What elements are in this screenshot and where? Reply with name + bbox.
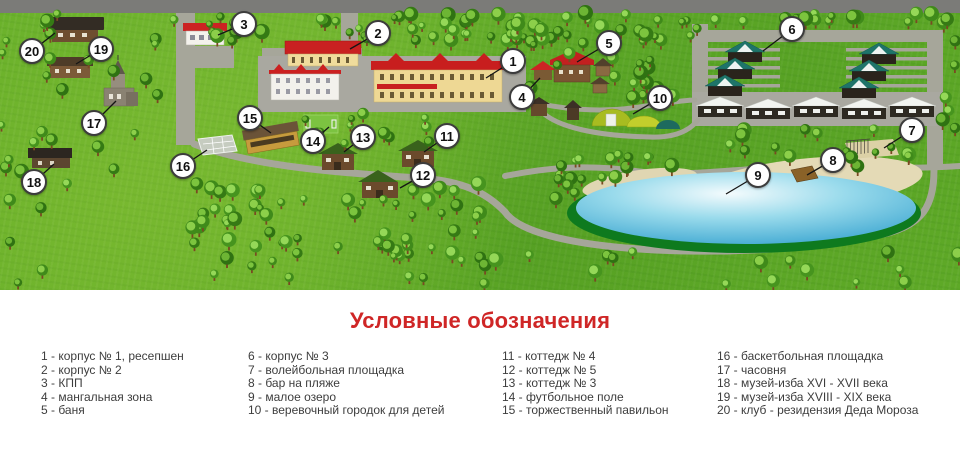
legend-item: 10 - веревочный городок для детей bbox=[248, 404, 444, 418]
legend-item: 5 - баня bbox=[41, 404, 184, 418]
map-marker-8: 8 bbox=[820, 147, 846, 173]
map-marker-14: 14 bbox=[300, 128, 326, 154]
gazebo bbox=[590, 77, 610, 93]
building-chapel bbox=[104, 55, 138, 106]
legend-item: 18 - музей-изба XVI - XVII века bbox=[717, 377, 918, 391]
map-marker-15: 15 bbox=[237, 105, 263, 131]
legend-item: 12 - коттедж № 5 bbox=[502, 364, 669, 378]
resort-map-page: 1234567891011121314151617181920 Условные… bbox=[0, 0, 960, 453]
legend-item: 20 - клуб - резидензия Деда Мороза bbox=[717, 404, 918, 418]
legend-item: 7 - волейбольная площадка bbox=[248, 364, 444, 378]
map-marker-6: 6 bbox=[779, 16, 805, 42]
map-marker-18: 18 bbox=[21, 169, 47, 195]
legend-item: 1 - корпус № 1, ресепшен bbox=[41, 350, 184, 364]
building-museum-izba-16-17 bbox=[28, 148, 72, 168]
map-marker-7: 7 bbox=[899, 117, 925, 143]
legend-column-2: 6 - корпус № 37 - волейбольная площадка8… bbox=[248, 350, 444, 418]
map-marker-19: 19 bbox=[88, 36, 114, 62]
map-marker-9: 9 bbox=[745, 162, 771, 188]
map-marker-4: 4 bbox=[509, 84, 535, 110]
map-marker-17: 17 bbox=[81, 110, 107, 136]
building-korpus-3-cottages bbox=[705, 41, 899, 98]
map-marker-5: 5 bbox=[596, 30, 622, 56]
legend-item: 3 - КПП bbox=[41, 377, 184, 391]
map-marker-13: 13 bbox=[350, 124, 376, 150]
legend-item: 15 - торжественный павильон bbox=[502, 404, 669, 418]
legend-item: 16 - баскетбольная площадка bbox=[717, 350, 918, 364]
lake-area bbox=[567, 148, 925, 253]
resort-map: 1234567891011121314151617181920 bbox=[0, 0, 960, 291]
terrain-layer bbox=[0, 0, 960, 290]
map-marker-3: 3 bbox=[231, 11, 257, 37]
legend-title: Условные обозначения bbox=[0, 308, 960, 334]
legend: Условные обозначения 1 - корпус № 1, рес… bbox=[0, 290, 960, 453]
map-marker-1: 1 bbox=[500, 48, 526, 74]
legend-column-4: 16 - баскетбольная площадка17 - часовня1… bbox=[717, 350, 918, 418]
legend-item: 4 - мангальная зона bbox=[41, 391, 184, 405]
legend-item: 9 - малое озеро bbox=[248, 391, 444, 405]
legend-item: 6 - корпус № 3 bbox=[248, 350, 444, 364]
map-marker-16: 16 bbox=[170, 153, 196, 179]
building-korpus-1 bbox=[371, 53, 504, 102]
map-marker-12: 12 bbox=[410, 162, 436, 188]
legend-item: 8 - бар на пляже bbox=[248, 377, 444, 391]
legend-item: 2 - корпус № 2 bbox=[41, 364, 184, 378]
map-marker-10: 10 bbox=[647, 85, 673, 111]
map-marker-2: 2 bbox=[365, 20, 391, 46]
legend-item: 14 - футбольное поле bbox=[502, 391, 669, 405]
legend-item: 19 - музей-изба XVIII - XIX века bbox=[717, 391, 918, 405]
building-korpus-2 bbox=[285, 41, 361, 66]
legend-item: 11 - коттедж № 4 bbox=[502, 350, 669, 364]
legend-item: 13 - коттедж № 3 bbox=[502, 377, 669, 391]
legend-column-1: 1 - корпус № 1, ресепшен2 - корпус № 23 … bbox=[41, 350, 184, 418]
map-marker-11: 11 bbox=[434, 123, 460, 149]
legend-item: 17 - часовня bbox=[717, 364, 918, 378]
legend-column-3: 11 - коттедж № 412 - коттедж № 513 - кот… bbox=[502, 350, 669, 418]
map-marker-20: 20 bbox=[19, 38, 45, 64]
